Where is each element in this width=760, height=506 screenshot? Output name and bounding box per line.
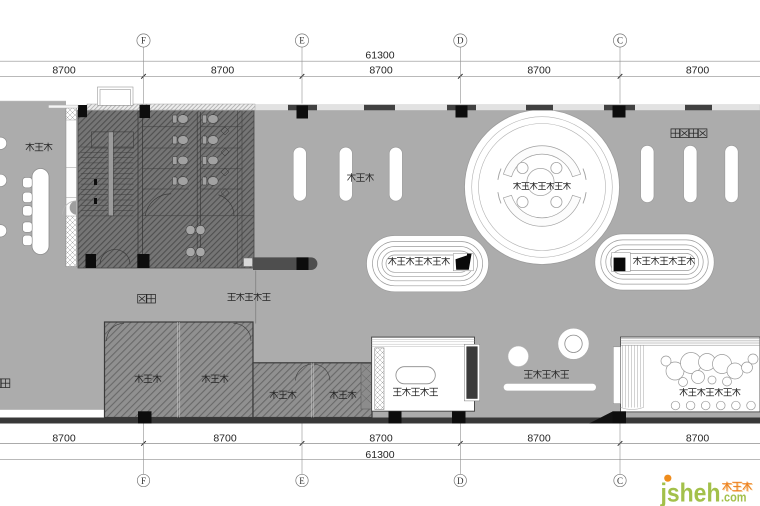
svg-text:8700: 8700 <box>369 433 393 445</box>
svg-text:8700: 8700 <box>213 433 237 445</box>
svg-text:61300: 61300 <box>365 449 394 461</box>
svg-text:jsheh: jsheh <box>660 478 721 506</box>
svg-text:C: C <box>617 476 623 486</box>
svg-text:8700: 8700 <box>527 433 551 445</box>
svg-text:8700: 8700 <box>369 64 393 76</box>
svg-text:D: D <box>457 36 464 46</box>
svg-text:F: F <box>141 36 146 46</box>
svg-text:8700: 8700 <box>527 64 551 76</box>
svg-text:8700: 8700 <box>686 433 710 445</box>
svg-text:E: E <box>299 476 305 486</box>
svg-text:8700: 8700 <box>211 64 235 76</box>
svg-text:8700: 8700 <box>52 64 76 76</box>
svg-text:E: E <box>299 36 305 46</box>
svg-text:F: F <box>141 476 146 486</box>
svg-text:D: D <box>457 476 464 486</box>
svg-text:8700: 8700 <box>52 433 76 445</box>
svg-text:61300: 61300 <box>365 50 394 62</box>
svg-text:8700: 8700 <box>686 64 710 76</box>
svg-text:C: C <box>617 36 623 46</box>
